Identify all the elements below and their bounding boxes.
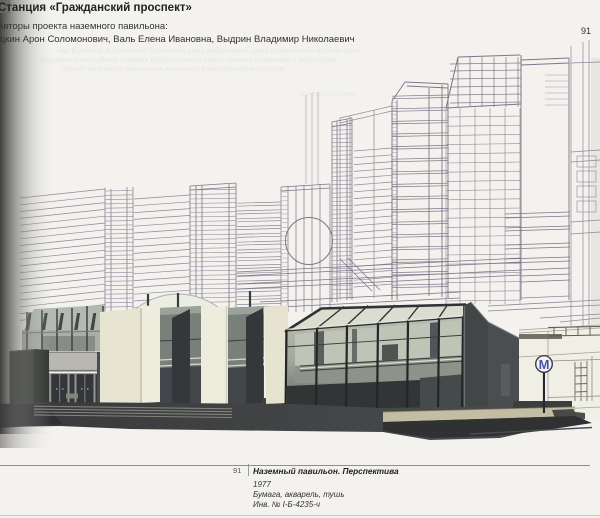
svg-text:проект наземного павильона вып: проект наземного павильона выполнен в ма… — [62, 64, 285, 73]
svg-text:аптеки проспект: аптеки проспект — [300, 89, 357, 98]
svg-text:нат Большой Васильевой Космети: нат Большой Васильевой Косметика улиц на… — [58, 46, 360, 55]
svg-text:М: М — [539, 357, 550, 372]
svg-text:подземный вестибюль станции Ме: подземный вестибюль станции Метрополитен… — [40, 55, 336, 64]
